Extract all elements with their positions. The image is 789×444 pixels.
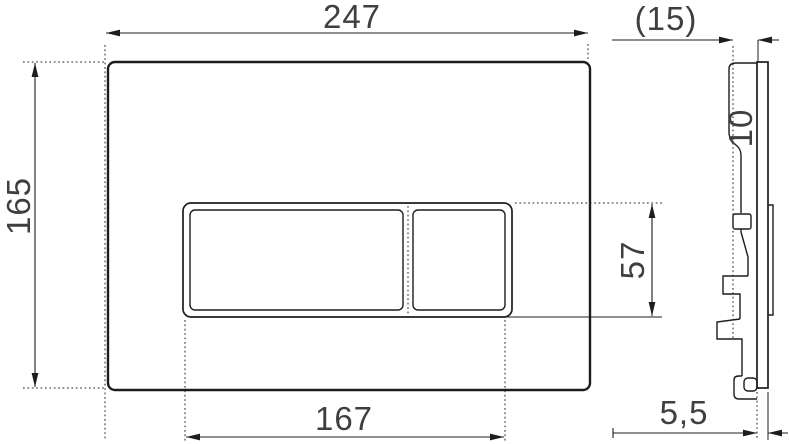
large-button xyxy=(190,210,403,310)
button-opening-frame xyxy=(183,203,512,317)
side-lower-hook xyxy=(717,319,742,376)
arrowhead-right xyxy=(758,37,772,44)
dim-mounting-depth: (15) xyxy=(612,0,779,338)
dim-opening-width: 167 xyxy=(185,320,505,442)
mounting-depth-label: (15) xyxy=(635,0,698,37)
arrowhead-left xyxy=(719,37,733,44)
side-lever-arm xyxy=(741,229,748,276)
front-view xyxy=(108,62,590,390)
arrowhead-right xyxy=(768,430,782,437)
arrowhead-right xyxy=(574,30,588,37)
technical-drawing: 247 165 167 57 (15) 10 xyxy=(0,0,789,444)
drawing-canvas: 247 165 167 57 (15) 10 xyxy=(0,0,789,444)
arrowhead-left xyxy=(186,434,200,441)
dim-opening-height: 57 xyxy=(498,203,662,317)
dim-overall-width: 247 xyxy=(105,0,588,440)
arrowhead-top xyxy=(649,204,656,218)
small-button xyxy=(413,210,505,310)
opening-width-label: 167 xyxy=(315,400,373,437)
opening-height-label: 57 xyxy=(614,241,651,280)
plate-outline xyxy=(108,62,590,390)
arrowhead-left xyxy=(106,30,120,37)
side-foot-detail xyxy=(744,378,757,391)
side-pivot-block xyxy=(733,214,751,229)
arrowhead-right xyxy=(490,434,504,441)
overall-width-label: 247 xyxy=(323,0,381,35)
dim-top-depth: 10 xyxy=(722,109,759,148)
overall-height-label: 165 xyxy=(0,177,37,235)
arrowhead-left xyxy=(743,430,757,437)
plate-thickness-label: 5,5 xyxy=(660,394,709,431)
side-upper-hook xyxy=(723,276,748,319)
top-depth-label: 10 xyxy=(722,109,759,148)
arrowhead-bottom xyxy=(32,373,39,387)
arrowhead-top xyxy=(32,63,39,77)
dim-overall-height: 165 xyxy=(0,62,106,388)
arrowhead-bottom xyxy=(649,302,656,316)
dim-plate-thickness: 5,5 xyxy=(613,392,788,440)
